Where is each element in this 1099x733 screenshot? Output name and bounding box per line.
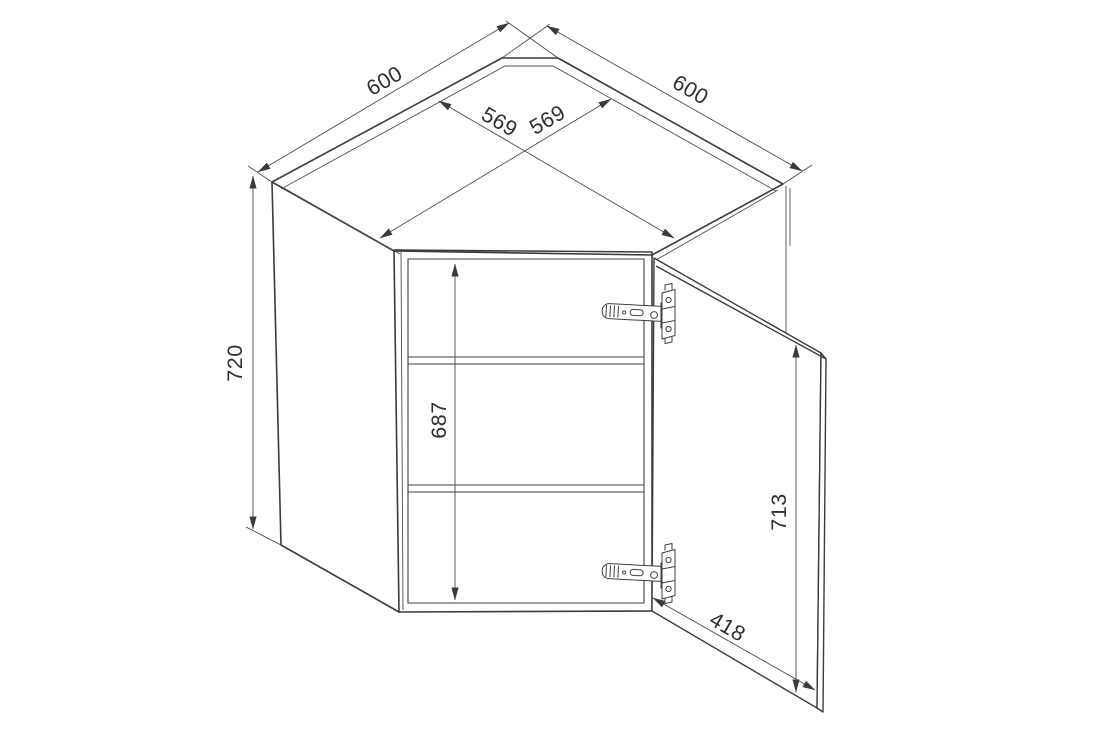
dim-label-back-right-width: 600 [668,70,712,109]
left-front-edge [394,251,399,612]
drawing-canvas: 600 600 569 569 720 687 71 [0,0,1099,733]
dimension-interior-height: 687 [427,264,455,600]
dimension-back-left-width: 600 [258,23,509,172]
dim-label-inner-width-right: 569 [525,100,569,139]
left-side-thickness-line [282,187,400,254]
shelf-lower [408,485,644,492]
left-side-panel [272,182,399,612]
dim-label-interior-height: 687 [427,401,451,438]
shelf-upper [408,357,644,364]
hinge-bottom [602,544,675,604]
dimension-back-right-width: 600 [547,26,802,171]
corner-cabinet-technical-drawing: 600 600 569 569 720 687 71 [0,0,1099,733]
dim-label-inner-width-left: 569 [477,102,521,141]
dim-label-cabinet-height: 720 [223,344,247,381]
front-frame-inner-line [401,252,403,610]
dimension-cabinet-height: 720 [223,176,253,529]
dim-label-back-left-width: 600 [362,61,406,100]
right-side-thickness-line [656,190,778,260]
hinge-top [602,284,675,344]
dim-label-door-height: 713 [767,493,791,530]
